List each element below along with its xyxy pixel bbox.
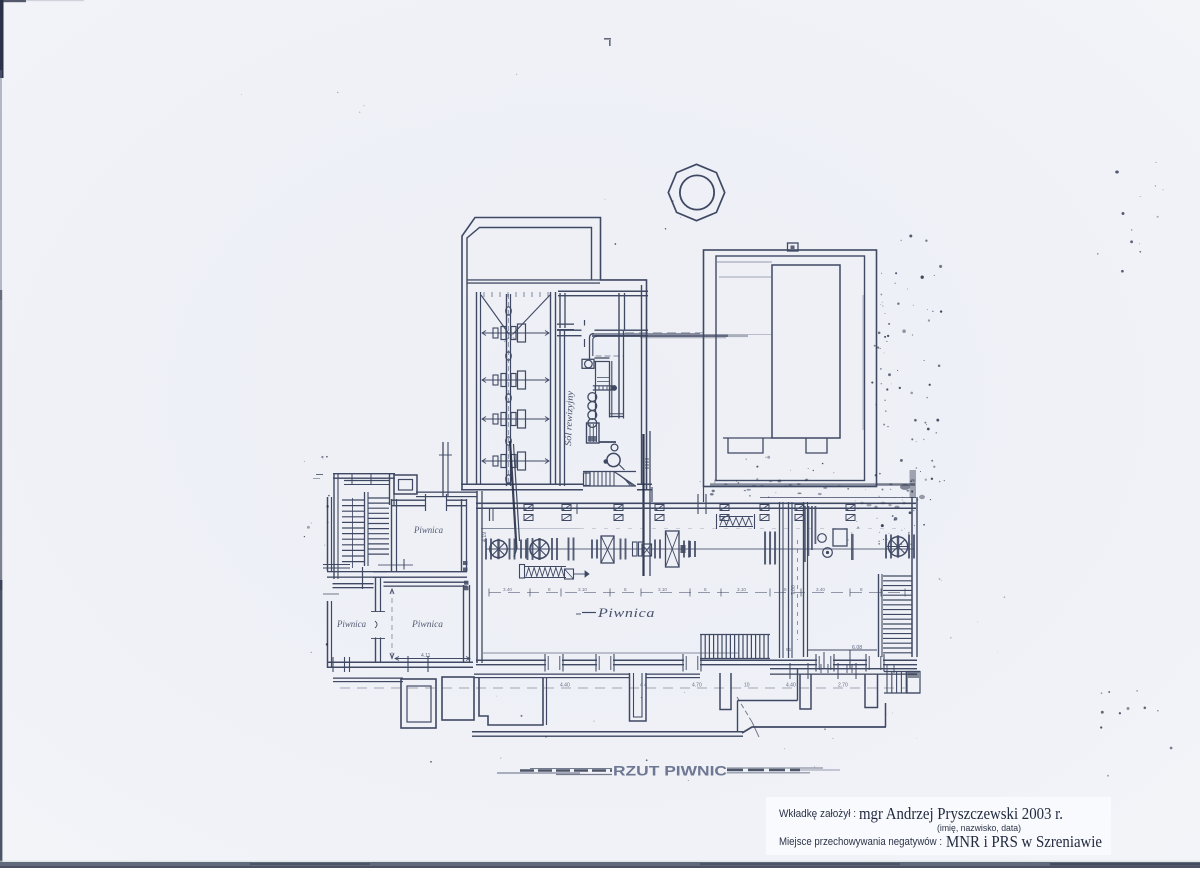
- svg-text:8: 8: [860, 587, 863, 592]
- svg-text:4.40: 4.40: [786, 683, 796, 689]
- svg-text:3.10: 3.10: [578, 587, 587, 592]
- svg-text:3.10: 3.10: [658, 587, 667, 592]
- svg-text:61: 61: [786, 647, 792, 653]
- svg-text:4.19: 4.19: [482, 532, 488, 542]
- svg-text:mgr Andrzej Pryszczewski 2003: mgr Andrzej Pryszczewski 2003 r.: [859, 804, 1063, 823]
- svg-text:4 4: 4 4: [640, 683, 647, 689]
- svg-text:8: 8: [704, 587, 707, 592]
- svg-text:Piwnica: Piwnica: [597, 605, 655, 620]
- svg-text:Piwnica: Piwnica: [411, 620, 443, 630]
- svg-text:MNR i PRS w Szreniawie: MNR i PRS w Szreniawie: [946, 832, 1102, 851]
- svg-text:RZUT PIWNIC: RZUT PIWNIC: [613, 764, 727, 779]
- svg-text:6.08: 6.08: [852, 645, 862, 651]
- svg-text:10: 10: [744, 683, 750, 689]
- svg-text:3.40: 3.40: [816, 587, 825, 592]
- svg-text:3.40: 3.40: [503, 587, 512, 592]
- svg-text:4.11: 4.11: [421, 653, 431, 659]
- svg-text:Piwnica: Piwnica: [413, 526, 443, 536]
- svg-text:8: 8: [548, 587, 551, 592]
- svg-text:Wkładkę założył :: Wkładkę założył :: [779, 808, 856, 820]
- svg-text:8: 8: [624, 587, 627, 592]
- svg-text:Miejsce przechowywania negatyw: Miejsce przechowywania negatywów :: [779, 836, 942, 848]
- svg-text:Piwnica: Piwnica: [336, 619, 366, 629]
- svg-text:2.70: 2.70: [838, 683, 848, 689]
- svg-text:4.40: 4.40: [560, 683, 570, 689]
- svg-text:7.00: 7.00: [791, 585, 797, 595]
- svg-text:8: 8: [784, 587, 787, 592]
- svg-text:3.10: 3.10: [737, 587, 746, 592]
- svg-text:Sól rewizyjny: Sól rewizyjny: [563, 390, 575, 446]
- svg-text:4.70: 4.70: [692, 683, 702, 689]
